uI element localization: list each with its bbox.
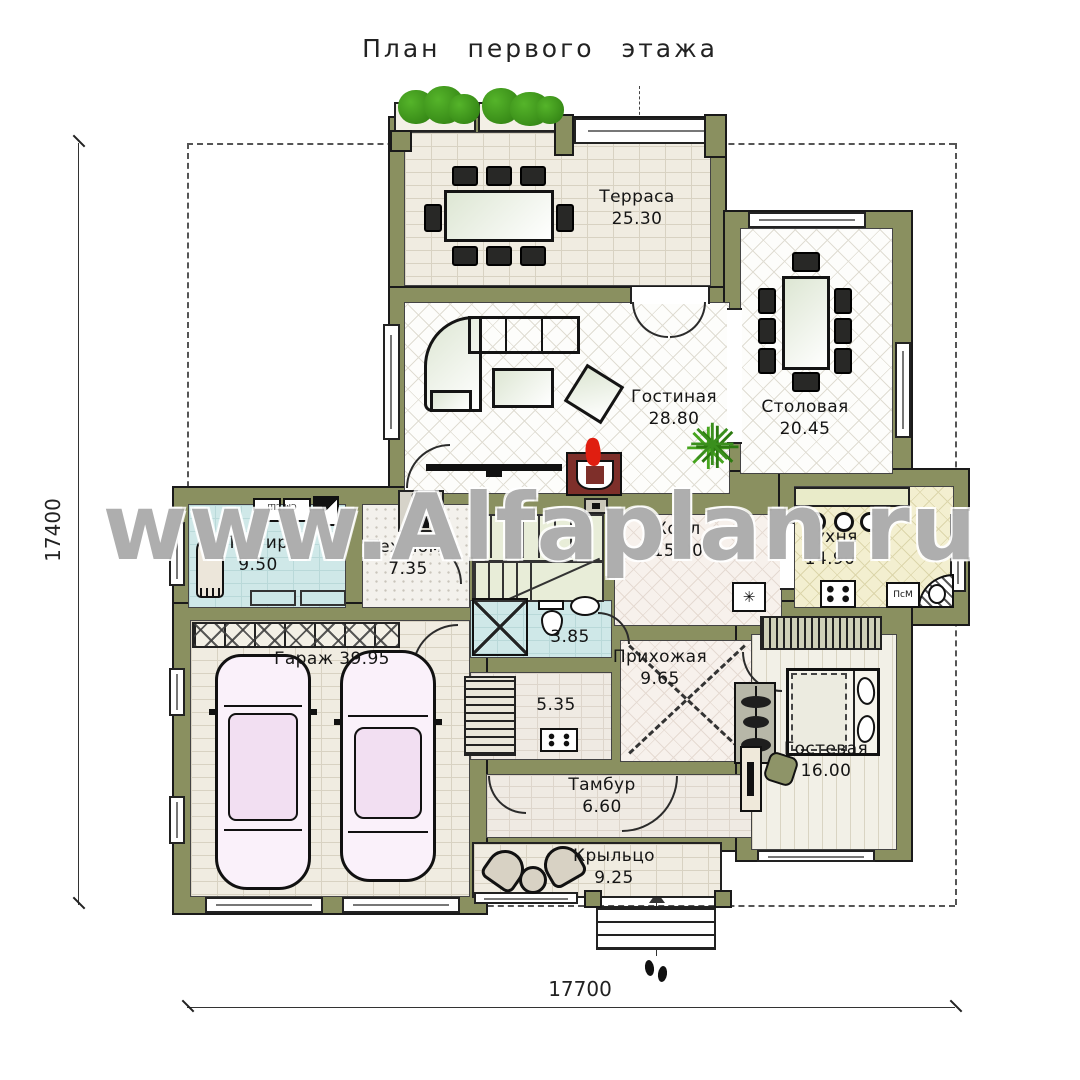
room-name: Холл bbox=[653, 518, 704, 540]
toilet-tank bbox=[538, 600, 564, 610]
dimension-line-bottom bbox=[187, 1007, 955, 1008]
garage-shelving bbox=[192, 622, 400, 648]
room-area: 28.80 bbox=[631, 408, 717, 430]
porch-pier-left bbox=[584, 890, 602, 908]
plant-bush bbox=[448, 94, 480, 124]
terrace-chair bbox=[486, 246, 512, 266]
sink-bowl bbox=[928, 584, 946, 604]
plant-bush bbox=[536, 96, 564, 124]
room-name: Кухня bbox=[802, 526, 858, 548]
bed-pillow bbox=[855, 676, 877, 706]
room-area: 9.50 bbox=[222, 554, 294, 576]
boiler-cabinet: ОКБ bbox=[398, 490, 444, 532]
terrace-railing bbox=[574, 118, 724, 144]
laundry-bench bbox=[250, 590, 296, 606]
dining-chair bbox=[758, 318, 776, 344]
fireplace-step-core bbox=[592, 503, 600, 509]
stair-treads-lower bbox=[474, 563, 536, 602]
fireplace-core bbox=[586, 466, 604, 484]
room-area: 3.85 bbox=[550, 627, 589, 647]
dining-table bbox=[782, 276, 830, 370]
car-mirror bbox=[209, 709, 218, 715]
window-porch-bottom bbox=[474, 892, 578, 904]
room-area: 6.60 bbox=[568, 796, 635, 818]
bar-stool bbox=[860, 512, 880, 532]
label-guest: Гостевая 16.00 bbox=[784, 738, 868, 782]
terrace-pillar-1 bbox=[390, 130, 412, 152]
car-windshield-line bbox=[224, 705, 302, 707]
room-name: Крыльцо bbox=[573, 845, 655, 867]
label-entry: Прихожая 9.65 bbox=[613, 646, 707, 690]
window-guest-bottom bbox=[757, 850, 875, 862]
wardrobe-clothes bbox=[741, 696, 771, 708]
dining-chair bbox=[834, 318, 852, 344]
room-name: Гараж bbox=[274, 649, 333, 669]
dishwasher-label: ПсМ bbox=[893, 590, 912, 600]
laundry-bench bbox=[300, 590, 346, 606]
car-roof bbox=[354, 727, 422, 819]
label-closet: 5.35 bbox=[536, 694, 575, 716]
ironing-board-legs bbox=[200, 588, 220, 596]
room-area: 9.25 bbox=[573, 867, 655, 889]
tv-unit bbox=[426, 464, 562, 471]
room-area: 39.95 bbox=[339, 649, 390, 669]
window-dining-right bbox=[895, 342, 911, 438]
sofa-end-seat bbox=[430, 390, 472, 412]
boiler-unit: ✳ bbox=[732, 582, 766, 612]
label-tech: Тех.пом. 7.35 bbox=[368, 536, 447, 580]
closet-cabinet bbox=[540, 728, 578, 752]
window-laundry-left bbox=[169, 522, 185, 586]
label-living: Гостиная 28.80 bbox=[631, 386, 717, 430]
opening-hall-kitchen bbox=[780, 522, 794, 590]
staircase bbox=[472, 514, 604, 602]
room-name: Тамбур bbox=[568, 774, 635, 796]
laundry-units-label: СМ СШ bbox=[251, 502, 313, 511]
tv-stand bbox=[486, 471, 502, 477]
window-dining-top bbox=[748, 212, 866, 228]
car-mirror bbox=[433, 719, 442, 725]
car-mirror bbox=[308, 709, 317, 715]
footprint-icon bbox=[644, 959, 655, 976]
dining-chair bbox=[792, 372, 820, 392]
car-rear-line bbox=[224, 829, 302, 831]
label-terrace: Терраса 25.30 bbox=[599, 186, 674, 230]
car-suv bbox=[215, 654, 311, 890]
dishwasher: ПсМ bbox=[886, 582, 920, 608]
terrace-chair bbox=[520, 246, 546, 266]
dimension-tick bbox=[73, 897, 86, 910]
room-area: 9.65 bbox=[613, 668, 707, 690]
coffee-table bbox=[492, 368, 554, 408]
room-name: Тех.пом. bbox=[368, 536, 447, 558]
terrace-chair bbox=[486, 166, 512, 186]
dining-chair bbox=[758, 348, 776, 374]
room-area: 25.30 bbox=[599, 208, 674, 230]
garage-door-1 bbox=[205, 897, 323, 913]
stair-treads-upper bbox=[474, 516, 602, 558]
terrace-dining-table bbox=[444, 190, 554, 242]
porch-pier-right bbox=[714, 890, 732, 908]
terrace-chair bbox=[424, 204, 442, 232]
washbasin bbox=[570, 596, 600, 616]
entry-steps bbox=[596, 906, 716, 950]
label-dining: Столовая 20.45 bbox=[761, 396, 848, 440]
boiler-cabinet-label: ОКБ bbox=[411, 492, 431, 502]
room-name: Гостиная bbox=[631, 386, 717, 408]
window-garage-left-2 bbox=[169, 796, 185, 844]
room-name: Прихожая bbox=[613, 646, 707, 668]
room-area: 20.45 bbox=[761, 418, 848, 440]
car-windshield-line bbox=[348, 715, 428, 717]
room-name: Терраса bbox=[599, 186, 674, 208]
label-hall: Холл 15.00 bbox=[653, 518, 704, 562]
label-bath: 3.85 bbox=[550, 626, 589, 648]
dimension-tick bbox=[73, 135, 86, 148]
water-heater bbox=[313, 496, 339, 526]
page-title: План первого этажа bbox=[0, 34, 1080, 63]
dimension-height-value: 17400 bbox=[41, 498, 65, 562]
sofa-main-section bbox=[468, 316, 580, 354]
room-area: 16.00 bbox=[784, 760, 868, 782]
guest-wardrobe bbox=[760, 616, 882, 650]
room-area: 5.35 bbox=[536, 695, 575, 715]
dining-chair bbox=[792, 252, 820, 272]
window-garage-left-1 bbox=[169, 668, 185, 716]
wardrobe-clothes bbox=[743, 716, 769, 728]
room-name: Гостевая bbox=[784, 738, 868, 760]
shower-cabin bbox=[472, 598, 528, 656]
dimension-height-label: 17400 bbox=[41, 465, 65, 595]
terrace-chair bbox=[520, 166, 546, 186]
room-name: Столовая bbox=[761, 396, 848, 418]
label-garage: Гараж 39.95 bbox=[274, 648, 390, 670]
boiler-vent bbox=[415, 516, 429, 528]
window-living-left bbox=[383, 324, 400, 440]
dimension-tick bbox=[182, 1000, 195, 1013]
footprint-icon bbox=[657, 965, 668, 982]
dining-chair bbox=[834, 288, 852, 314]
terrace-chair bbox=[452, 166, 478, 186]
room-area: 14.90 bbox=[802, 548, 858, 570]
closet-wardrobe bbox=[464, 676, 516, 756]
dimension-width-label: 17700 bbox=[510, 977, 650, 1001]
porch-table bbox=[519, 866, 547, 894]
room-name: Постир. bbox=[222, 532, 294, 554]
dimension-line-left bbox=[78, 143, 79, 905]
terrace-pillar-3 bbox=[704, 114, 727, 158]
dining-chair bbox=[758, 288, 776, 314]
car-roof bbox=[228, 713, 298, 821]
floor-plan-canvas: План первого этажа 17400 17700 bbox=[0, 0, 1080, 1080]
guest-desk bbox=[740, 746, 762, 812]
car-sedan bbox=[340, 650, 436, 882]
label-porch: Крыльцо 9.25 bbox=[573, 845, 655, 889]
dining-chair bbox=[834, 348, 852, 374]
room-area: 15.00 bbox=[653, 540, 704, 562]
kitchen-counter bbox=[794, 487, 910, 507]
car-rear-line bbox=[348, 831, 428, 833]
car-mirror bbox=[334, 719, 343, 725]
dimension-width-value: 17700 bbox=[548, 977, 612, 1001]
terrace-chair bbox=[452, 246, 478, 266]
label-kitchen: Кухня 14.90 bbox=[802, 526, 858, 570]
terrace-chair bbox=[556, 204, 574, 232]
dimension-tick bbox=[950, 1000, 963, 1013]
stove bbox=[820, 580, 856, 608]
garage-door-2 bbox=[342, 897, 460, 913]
label-laundry: Постир. 9.50 bbox=[222, 532, 294, 576]
label-vestibule: Тамбур 6.60 bbox=[568, 774, 635, 818]
room-area: 7.35 bbox=[368, 558, 447, 580]
desk-monitor bbox=[747, 762, 754, 796]
laundry-units-text: СМ СШ bbox=[267, 502, 296, 511]
